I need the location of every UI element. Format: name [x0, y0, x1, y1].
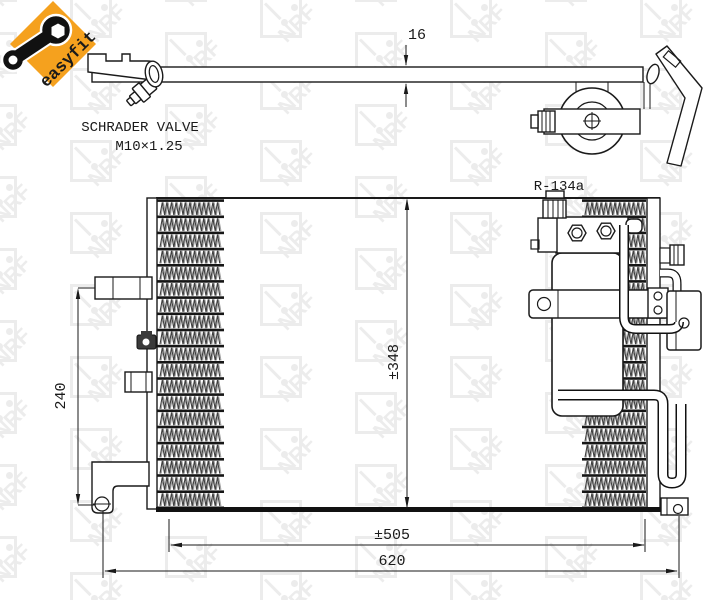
labels: SCHRADER VALVE M10×1.25 R-134a [81, 120, 584, 195]
service-port [670, 245, 684, 265]
dimension-240: 240 [53, 288, 95, 505]
refrigerant-label: R-134a [534, 179, 584, 195]
receiver-drier-top [531, 46, 702, 166]
dimension-505: ±505 [169, 519, 645, 552]
thread-size-label: M10×1.25 [115, 139, 182, 155]
technical-drawing-page: NRFNRFNRFNRFNRFNRFNRFNRFNRFNRFNRFNRFNRFN… [0, 0, 726, 600]
easyfit-badge: easyfit [2, 1, 101, 92]
core-top-view-bar [92, 67, 643, 82]
dim-bracket-spacing: 240 [53, 382, 70, 409]
dim-core-width: ±505 [374, 527, 410, 544]
dim-core-height: ±348 [386, 344, 403, 380]
drier-manifold [556, 217, 628, 253]
dim-core-thickness: 16 [408, 27, 426, 44]
dimension-348: ±348 [386, 198, 409, 509]
tank-port-block [125, 372, 152, 392]
schrader-valve-label: SCHRADER VALVE [81, 120, 199, 136]
core-bottom-edge [156, 507, 661, 512]
dim-overall-width: 620 [378, 553, 405, 570]
inlet-fitting-block [95, 277, 152, 299]
condenser-drawing: 16 [0, 0, 726, 600]
valve-block [538, 218, 557, 252]
bottom-left-bracket [92, 462, 149, 513]
right-bracket [667, 291, 701, 350]
